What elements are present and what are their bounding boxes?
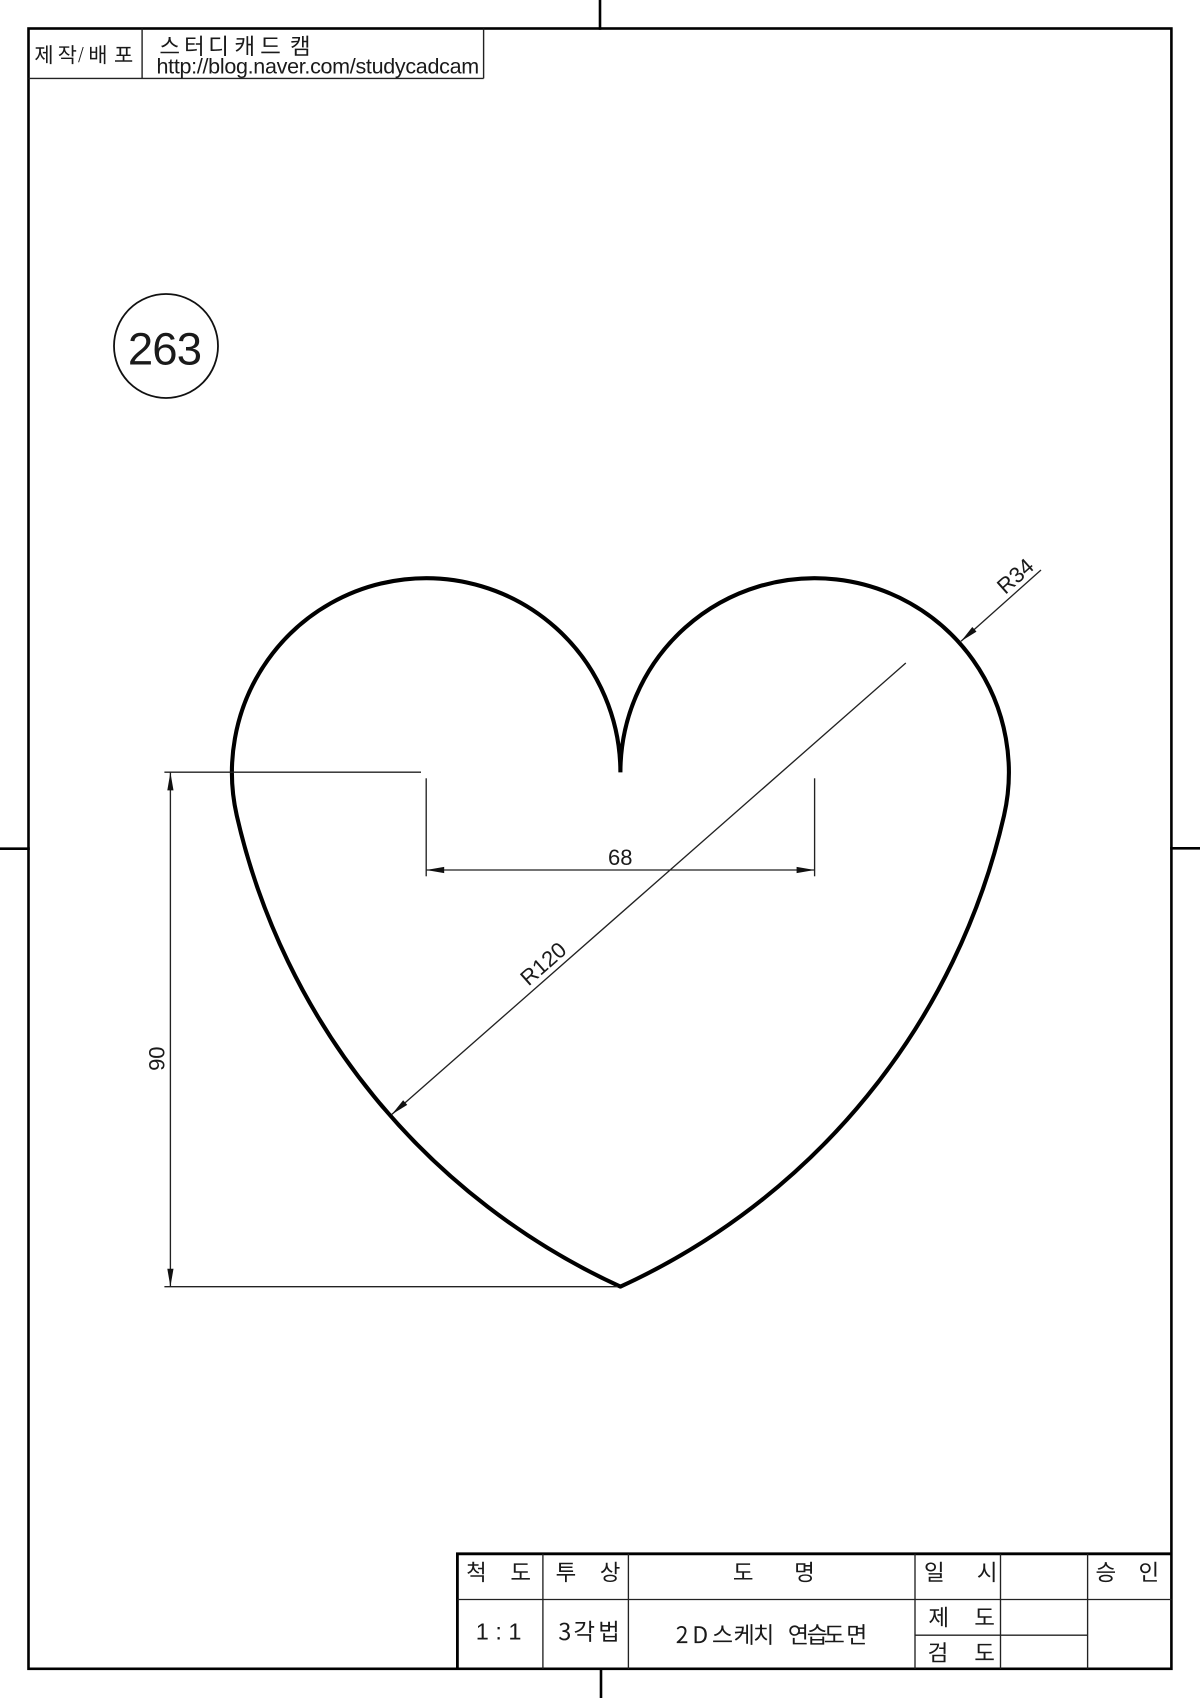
svg-text:1 : 1: 1 : 1 bbox=[476, 1619, 522, 1645]
svg-text:http://blog.naver.com/studycad: http://blog.naver.com/studycadcam bbox=[157, 55, 479, 79]
svg-text:263: 263 bbox=[128, 323, 201, 374]
svg-text:68: 68 bbox=[608, 845, 632, 870]
svg-text:90: 90 bbox=[145, 1046, 170, 1070]
